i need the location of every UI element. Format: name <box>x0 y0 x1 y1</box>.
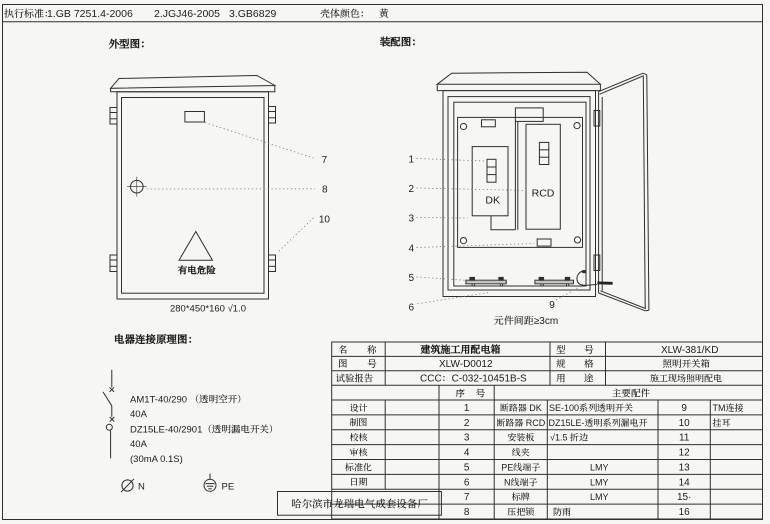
svg-text:6: 6 <box>409 298 415 313</box>
svg-text:LMY: LMY <box>590 475 609 488</box>
svg-text:1: 1 <box>409 150 415 165</box>
svg-text:14: 14 <box>679 473 691 488</box>
svg-text:防雨: 防雨 <box>553 505 571 518</box>
svg-text:标准化: 标准化 <box>344 460 372 473</box>
svg-text:√1.5 折边: √1.5 折边 <box>550 431 589 444</box>
svg-text:DZ15LE-40/2901（透明漏电开关）: DZ15LE-40/2901（透明漏电开关） <box>130 422 278 436</box>
svg-text:安装板: 安装板 <box>507 431 534 444</box>
svg-text:RCD: RCD <box>532 186 555 201</box>
svg-text:SE-100系列透明开关: SE-100系列透明开关 <box>549 401 633 414</box>
svg-text:N: N <box>138 479 145 493</box>
svg-text:10: 10 <box>319 211 331 226</box>
svg-text:3: 3 <box>409 209 415 224</box>
svg-text:线夹: 线夹 <box>512 446 530 459</box>
svg-text:9: 9 <box>549 296 555 311</box>
svg-text:有电危险: 有电危险 <box>178 262 217 276</box>
svg-text:试验报告CCC：C-032-10451B-S用途施工现场照明: 试验报告CCC：C-032-10451B-S用途施工现场照明配电 <box>336 370 723 385</box>
svg-text:断路器 DK: 断路器 DK <box>500 401 542 414</box>
svg-text:哈尔滨市龙瑞电气成套设备厂: 哈尔滨市龙瑞电气成套设备厂 <box>291 496 428 511</box>
svg-text:4: 4 <box>409 239 415 254</box>
svg-text:(30mA 0.1S): (30mA 0.1S) <box>130 451 183 465</box>
svg-text:TM连接: TM连接 <box>713 401 744 414</box>
svg-text:PE线端子: PE线端子 <box>501 461 540 474</box>
svg-text:LMY: LMY <box>590 461 609 474</box>
svg-text:280*450*160 √1.0: 280*450*160 √1.0 <box>170 301 246 315</box>
svg-text:16: 16 <box>679 503 691 518</box>
svg-text:N线端子: N线端子 <box>504 475 538 488</box>
svg-text:2: 2 <box>464 414 470 429</box>
svg-text:执行标准：1.GB 7251.4-20062.JGJ46-2: 执行标准：1.GB 7251.4-20062.JGJ46-20053.GB682… <box>4 5 389 21</box>
svg-text:LMY: LMY <box>590 490 609 503</box>
svg-text:元件间距≥3cm: 元件间距≥3cm <box>494 312 558 327</box>
svg-text:名称建筑施工用配电箱型号XLW-381/KD: 名称建筑施工用配电箱型号XLW-381/KD <box>338 341 718 356</box>
svg-text:电器连接原理图：: 电器连接原理图： <box>114 332 198 347</box>
svg-text:5: 5 <box>464 459 470 474</box>
svg-text:5: 5 <box>409 269 415 284</box>
svg-text:40A: 40A <box>130 436 148 450</box>
svg-text:40A: 40A <box>130 406 148 420</box>
svg-text:校核: 校核 <box>349 431 368 444</box>
svg-text:7: 7 <box>464 488 470 503</box>
svg-text:制图: 制图 <box>349 416 367 429</box>
svg-text:8: 8 <box>322 180 328 195</box>
svg-text:DK: DK <box>485 192 500 207</box>
svg-text:13: 13 <box>679 459 691 474</box>
svg-text:4: 4 <box>464 444 470 459</box>
svg-text:外型图：: 外型图： <box>109 37 151 52</box>
svg-text:日期: 日期 <box>349 475 367 488</box>
svg-text:标牌: 标牌 <box>511 490 530 503</box>
svg-text:6: 6 <box>464 473 470 488</box>
svg-text:挂耳: 挂耳 <box>712 416 731 429</box>
svg-text:3: 3 <box>464 429 470 444</box>
svg-text:11: 11 <box>679 429 690 444</box>
svg-text:2: 2 <box>409 180 415 195</box>
svg-text:审核: 审核 <box>349 445 368 458</box>
svg-text:1: 1 <box>464 399 470 414</box>
svg-text:压把锁: 压把锁 <box>506 505 534 518</box>
svg-text:设计: 设计 <box>349 401 368 414</box>
svg-text:12: 12 <box>679 444 691 459</box>
svg-text:图号XLW-D0012规格照明开关箱: 图号XLW-D0012规格照明开关箱 <box>338 355 710 370</box>
svg-text:9: 9 <box>681 399 687 414</box>
svg-text:序号主要配件: 序号主要配件 <box>456 385 651 399</box>
svg-text:AM1T-40/290 （透明空开）: AM1T-40/290 （透明空开） <box>130 391 247 405</box>
svg-text:装配图：: 装配图： <box>380 35 422 50</box>
svg-text:8: 8 <box>464 503 470 518</box>
svg-text:7: 7 <box>322 151 328 166</box>
svg-text:15·: 15· <box>677 488 691 503</box>
svg-text:断路器 RCD: 断路器 RCD <box>496 416 545 429</box>
svg-text:10: 10 <box>679 414 691 429</box>
svg-text:PE: PE <box>222 479 235 493</box>
svg-text:DZ15LE-透明系列漏电开: DZ15LE-透明系列漏电开 <box>549 416 649 429</box>
